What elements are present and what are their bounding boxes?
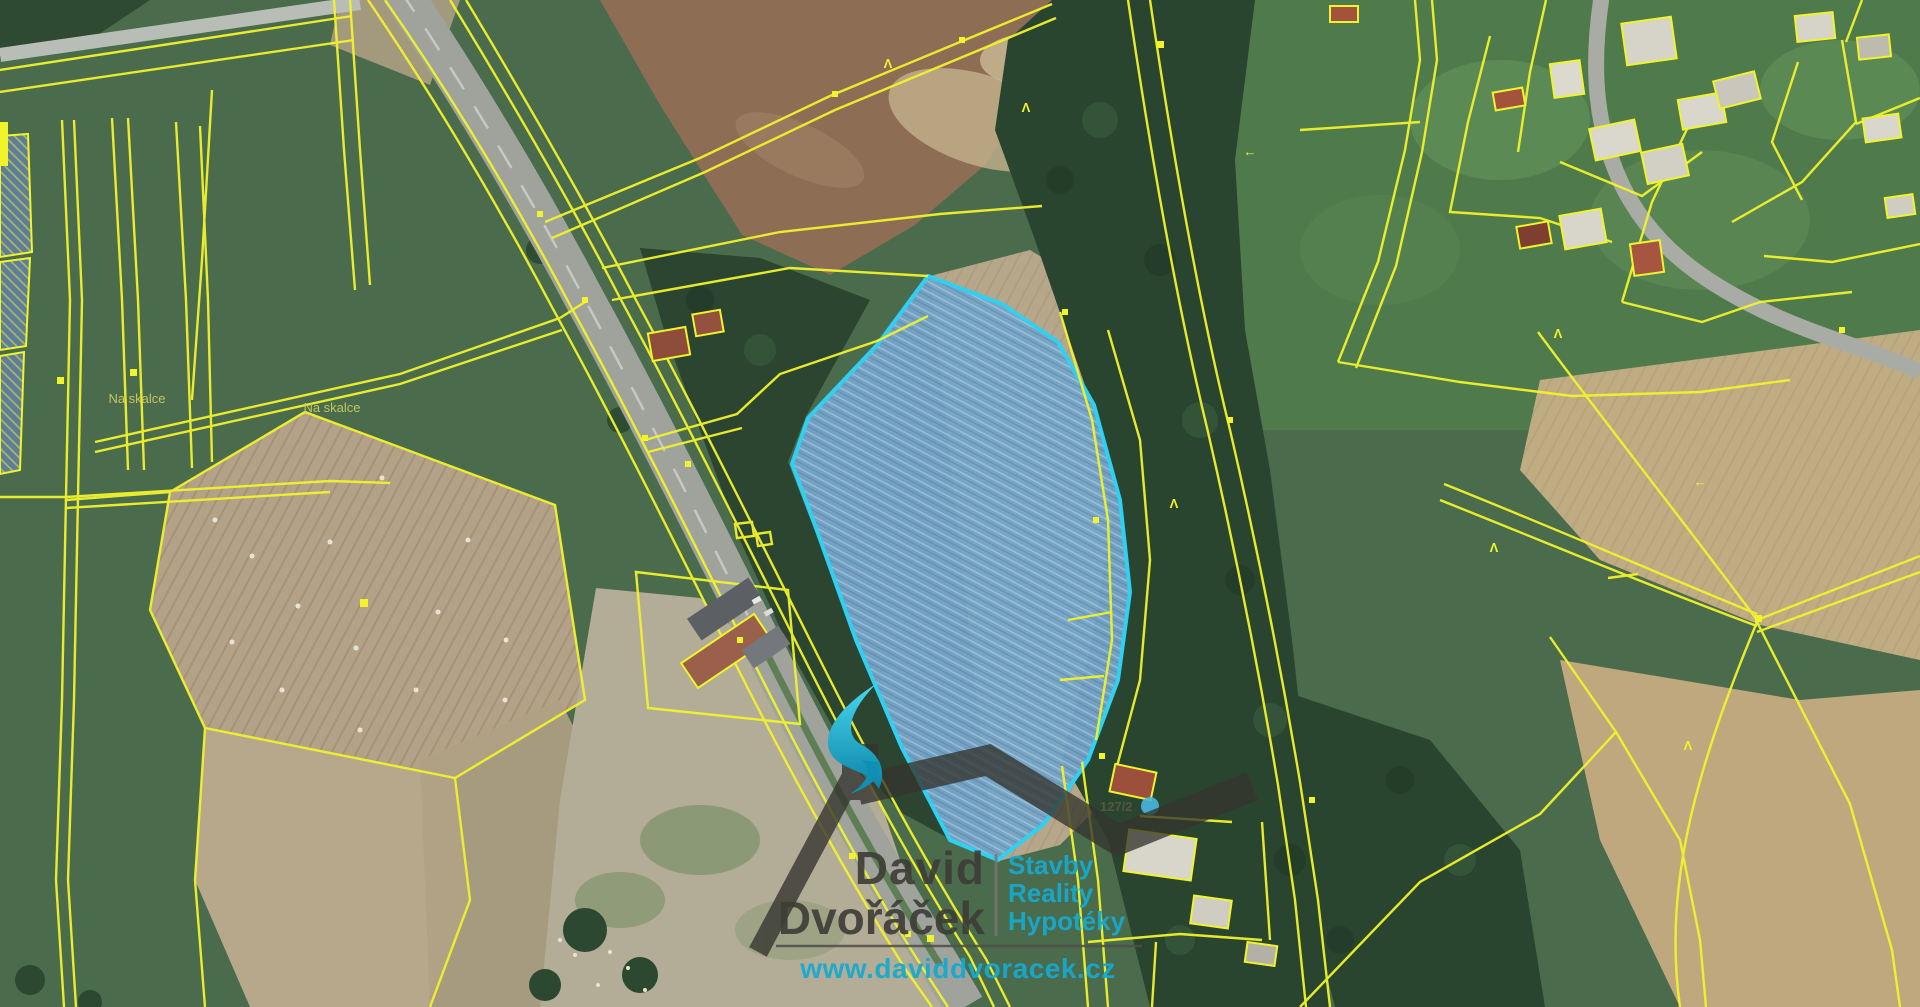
caret-icon: Λ xyxy=(1022,100,1031,115)
caret-icon: Λ xyxy=(884,56,893,71)
place-label-na-skalce-2: Na skalce xyxy=(303,400,360,415)
watermark-service-2: Reality xyxy=(1008,878,1094,908)
map-canvas[interactable]: Λ Λ Λ Λ Λ Λ ← ← Na skalce Na skalce 127/… xyxy=(0,0,1920,1007)
parcel-number-label: 127/2 xyxy=(1100,799,1133,814)
caret-icon: Λ xyxy=(1170,496,1179,511)
caret-icon: Λ xyxy=(1684,738,1693,753)
caret-icon: Λ xyxy=(1490,540,1499,555)
caret-icon: Λ xyxy=(1554,326,1563,341)
watermark-service-3: Hypotéky xyxy=(1008,906,1126,936)
satellite-cadastral-map[interactable]: Λ Λ Λ Λ Λ Λ ← ← Na skalce Na skalce 127/… xyxy=(0,0,1920,1007)
watermark-name-line1: David xyxy=(855,842,985,894)
arrow-left-icon: ← xyxy=(1244,144,1257,159)
arrow-left-icon: ← xyxy=(1694,474,1707,489)
watermark-name-line2: Dvořáček xyxy=(778,892,986,944)
watermark-service-1: Stavby xyxy=(1008,850,1094,880)
watermark-website: www.daviddvoracek.cz xyxy=(799,953,1116,984)
place-label-na-skalce-1: Na skalce xyxy=(108,391,165,406)
